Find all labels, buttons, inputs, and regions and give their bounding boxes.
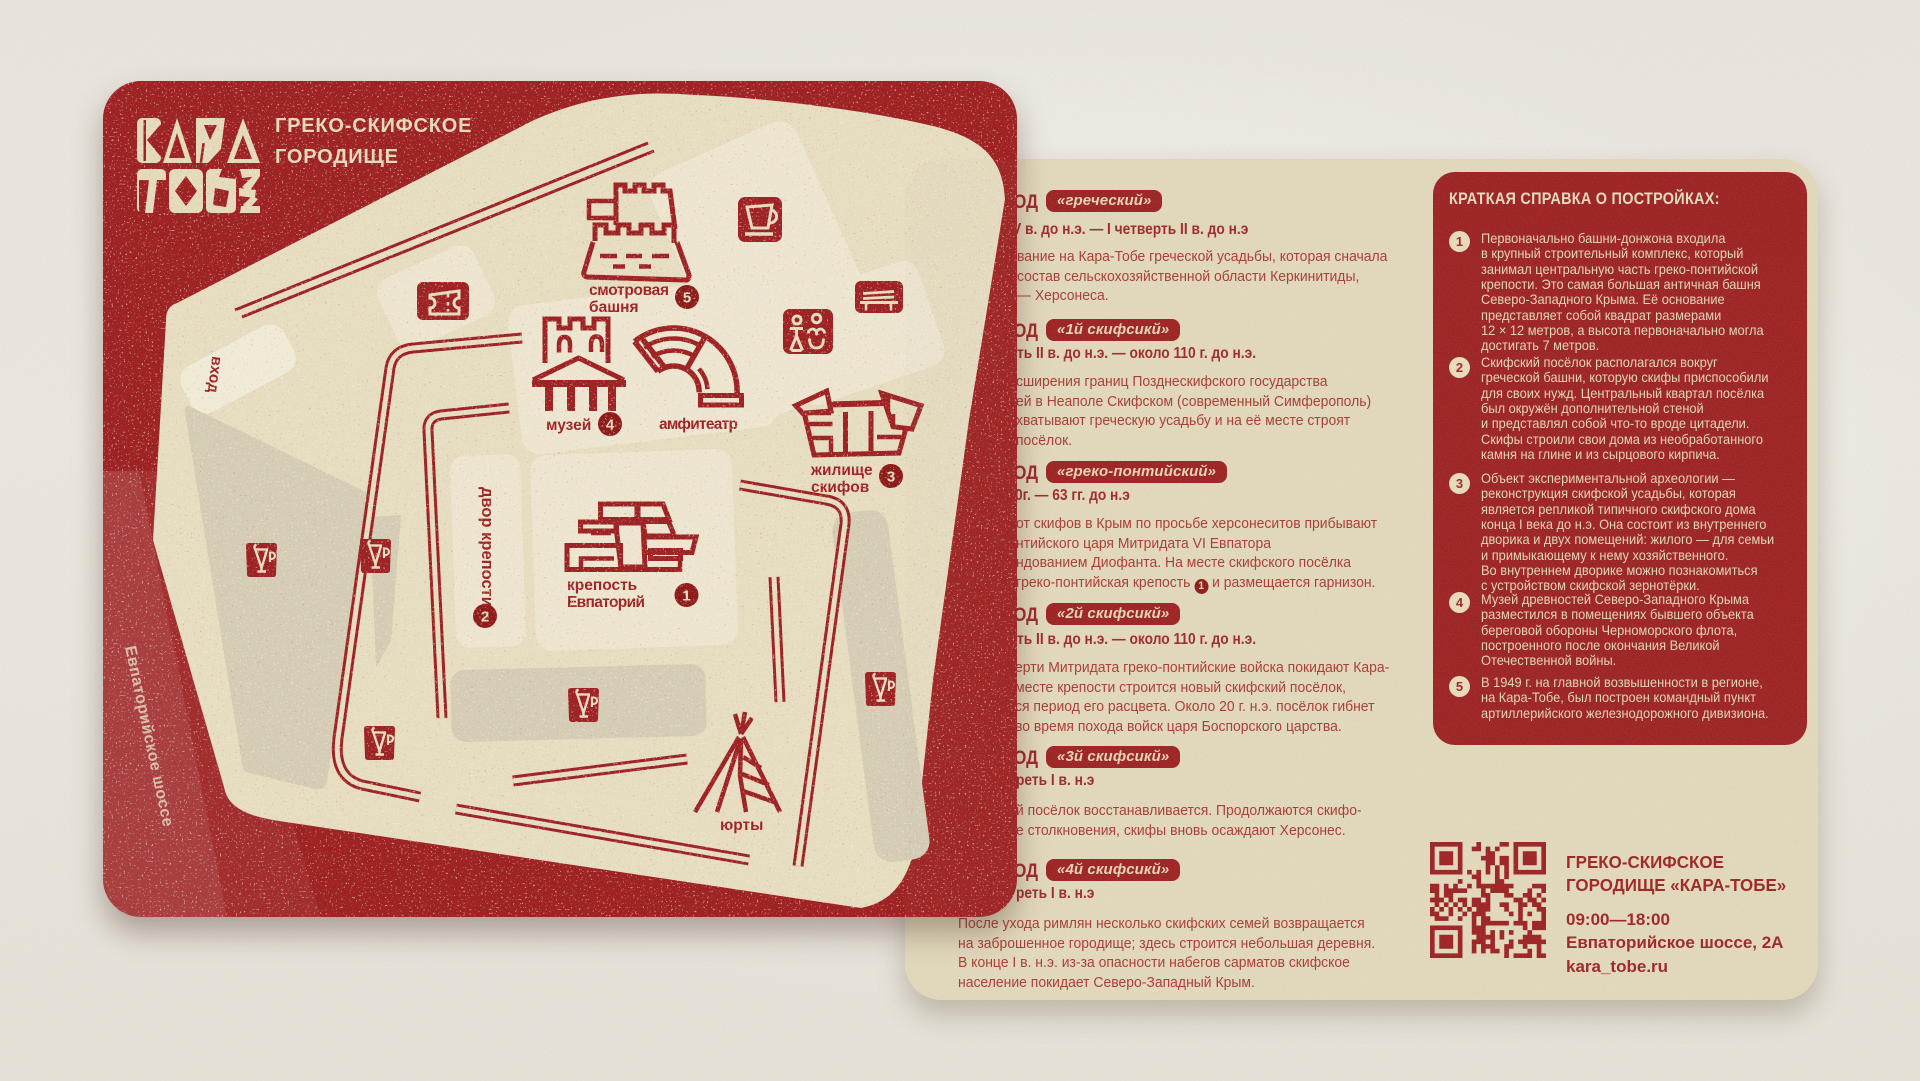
svg-text:ГРЕКО-СКИФСКОЕ: ГРЕКО-СКИФСКОЕ xyxy=(275,115,472,137)
svg-text:смотровая: смотровая xyxy=(589,282,669,299)
svg-text:крепость: крепость xyxy=(567,577,637,594)
svg-text:Евпаторий: Евпаторий xyxy=(567,594,645,611)
svg-text:жилище: жилище xyxy=(810,462,873,479)
svg-text:4: 4 xyxy=(606,417,615,434)
svg-text:5: 5 xyxy=(683,290,691,307)
svg-text:башня: башня xyxy=(589,299,639,316)
svg-text:ГОРОДИЩЕ: ГОРОДИЩЕ xyxy=(275,146,399,168)
svg-text:1: 1 xyxy=(682,588,690,605)
svg-text:юрты: юрты xyxy=(720,817,763,834)
svg-text:скифов: скифов xyxy=(811,479,869,496)
svg-text:двор крепости: двор крепости xyxy=(478,487,496,607)
svg-text:амфитеатр: амфитеатр xyxy=(659,416,738,433)
svg-text:2: 2 xyxy=(481,609,489,626)
svg-text:музей: музей xyxy=(546,417,591,434)
svg-text:3: 3 xyxy=(887,469,895,486)
